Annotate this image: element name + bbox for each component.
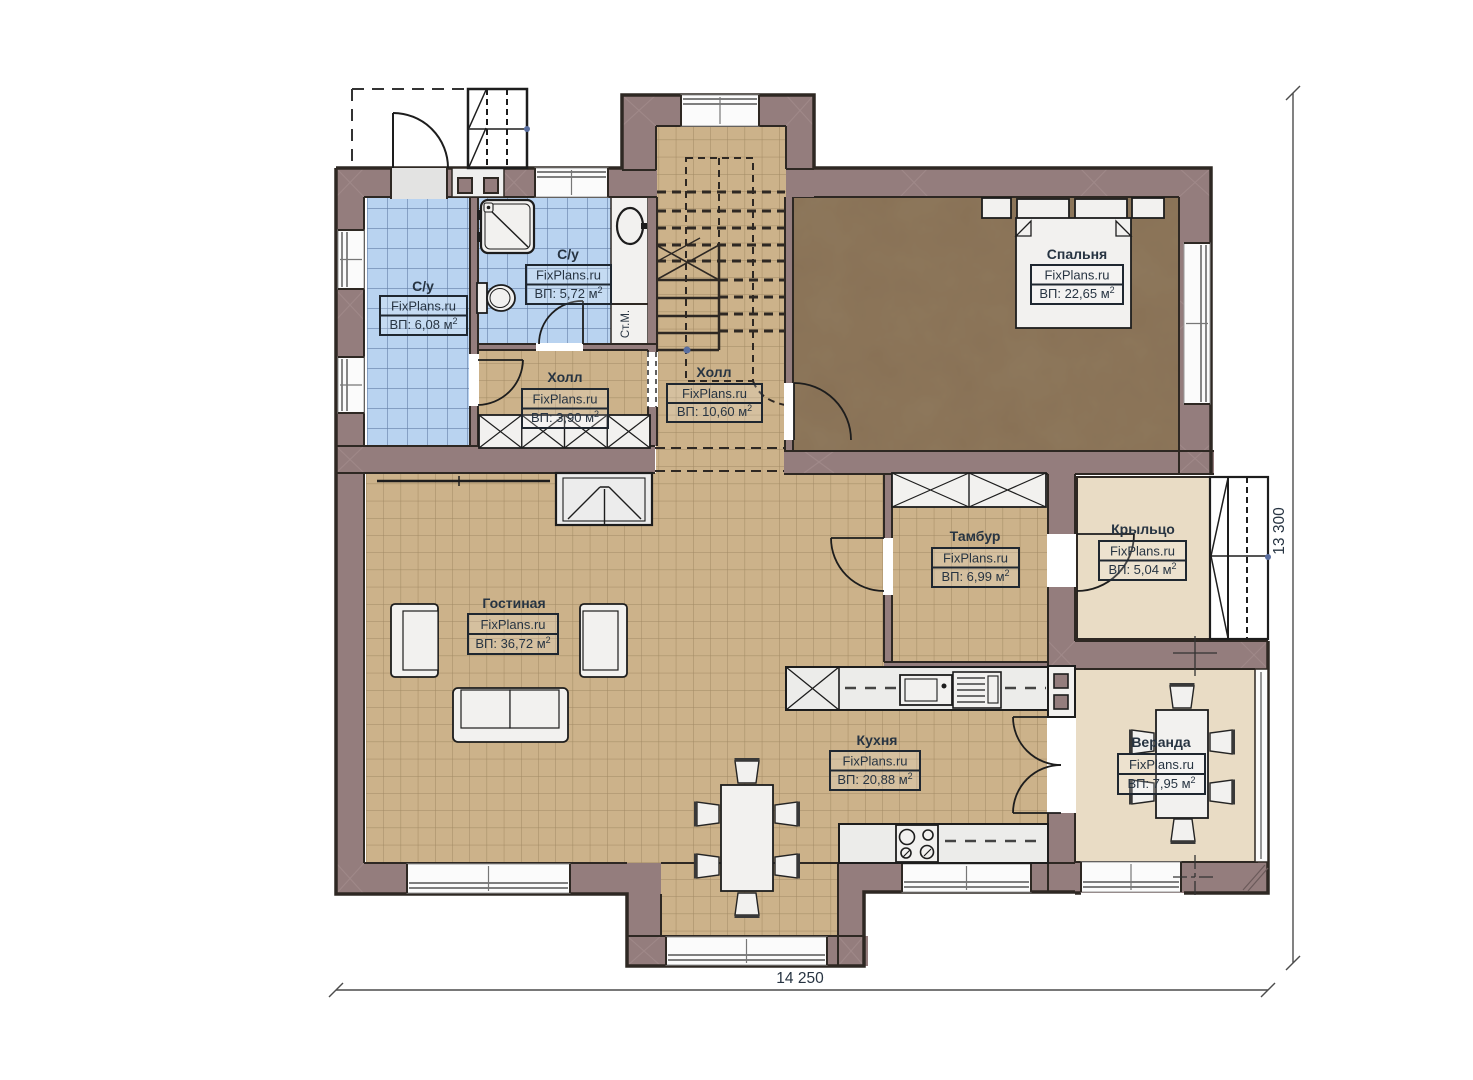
- svg-text:Крыльцо: Крыльцо: [1111, 521, 1175, 537]
- svg-text:14 250: 14 250: [776, 970, 824, 987]
- svg-text:ВП: 36,72 м2: ВП: 36,72 м2: [475, 635, 550, 651]
- svg-text:FixPlans.ru: FixPlans.ru: [682, 386, 747, 401]
- svg-text:ВП: 6,08 м2: ВП: 6,08 м2: [389, 316, 457, 332]
- svg-text:FixPlans.ru: FixPlans.ru: [1129, 757, 1194, 772]
- svg-text:ВП: 6,99 м2: ВП: 6,99 м2: [941, 568, 1009, 584]
- svg-text:FixPlans.ru: FixPlans.ru: [391, 299, 456, 314]
- svg-text:FixPlans.ru: FixPlans.ru: [532, 392, 597, 407]
- svg-text:FixPlans.ru: FixPlans.ru: [943, 551, 1008, 566]
- svg-text:FixPlans.ru: FixPlans.ru: [536, 268, 601, 283]
- svg-text:Холл: Холл: [547, 369, 582, 385]
- svg-text:ВП: 10,60 м2: ВП: 10,60 м2: [677, 403, 752, 419]
- svg-text:ВП: 7,95 м2: ВП: 7,95 м2: [1127, 775, 1195, 791]
- svg-text:Ст.М.: Ст.М.: [620, 310, 632, 338]
- svg-text:ВП: 5,72 м2: ВП: 5,72 м2: [534, 285, 602, 301]
- svg-text:FixPlans.ru: FixPlans.ru: [480, 617, 545, 632]
- svg-text:Холл: Холл: [696, 364, 731, 380]
- svg-text:Кухня: Кухня: [857, 732, 898, 748]
- svg-text:С/у: С/у: [412, 278, 434, 294]
- svg-text:13 300: 13 300: [1271, 507, 1288, 555]
- svg-text:FixPlans.ru: FixPlans.ru: [1044, 268, 1109, 283]
- svg-text:С/у: С/у: [557, 246, 579, 262]
- svg-text:FixPlans.ru: FixPlans.ru: [1110, 544, 1175, 559]
- svg-text:ВП: 20,88 м2: ВП: 20,88 м2: [837, 771, 912, 787]
- svg-text:Тамбур: Тамбур: [950, 528, 1001, 544]
- svg-text:ВП: 3,90 м2: ВП: 3,90 м2: [531, 409, 599, 425]
- svg-text:Гостиная: Гостиная: [482, 595, 545, 611]
- svg-text:Спальня: Спальня: [1047, 246, 1107, 262]
- svg-text:ВП: 5,04 м2: ВП: 5,04 м2: [1108, 561, 1176, 577]
- svg-text:FixPlans.ru: FixPlans.ru: [842, 754, 907, 769]
- svg-text:ВП: 22,65 м2: ВП: 22,65 м2: [1039, 285, 1114, 301]
- svg-text:Веранда: Веранда: [1131, 734, 1191, 750]
